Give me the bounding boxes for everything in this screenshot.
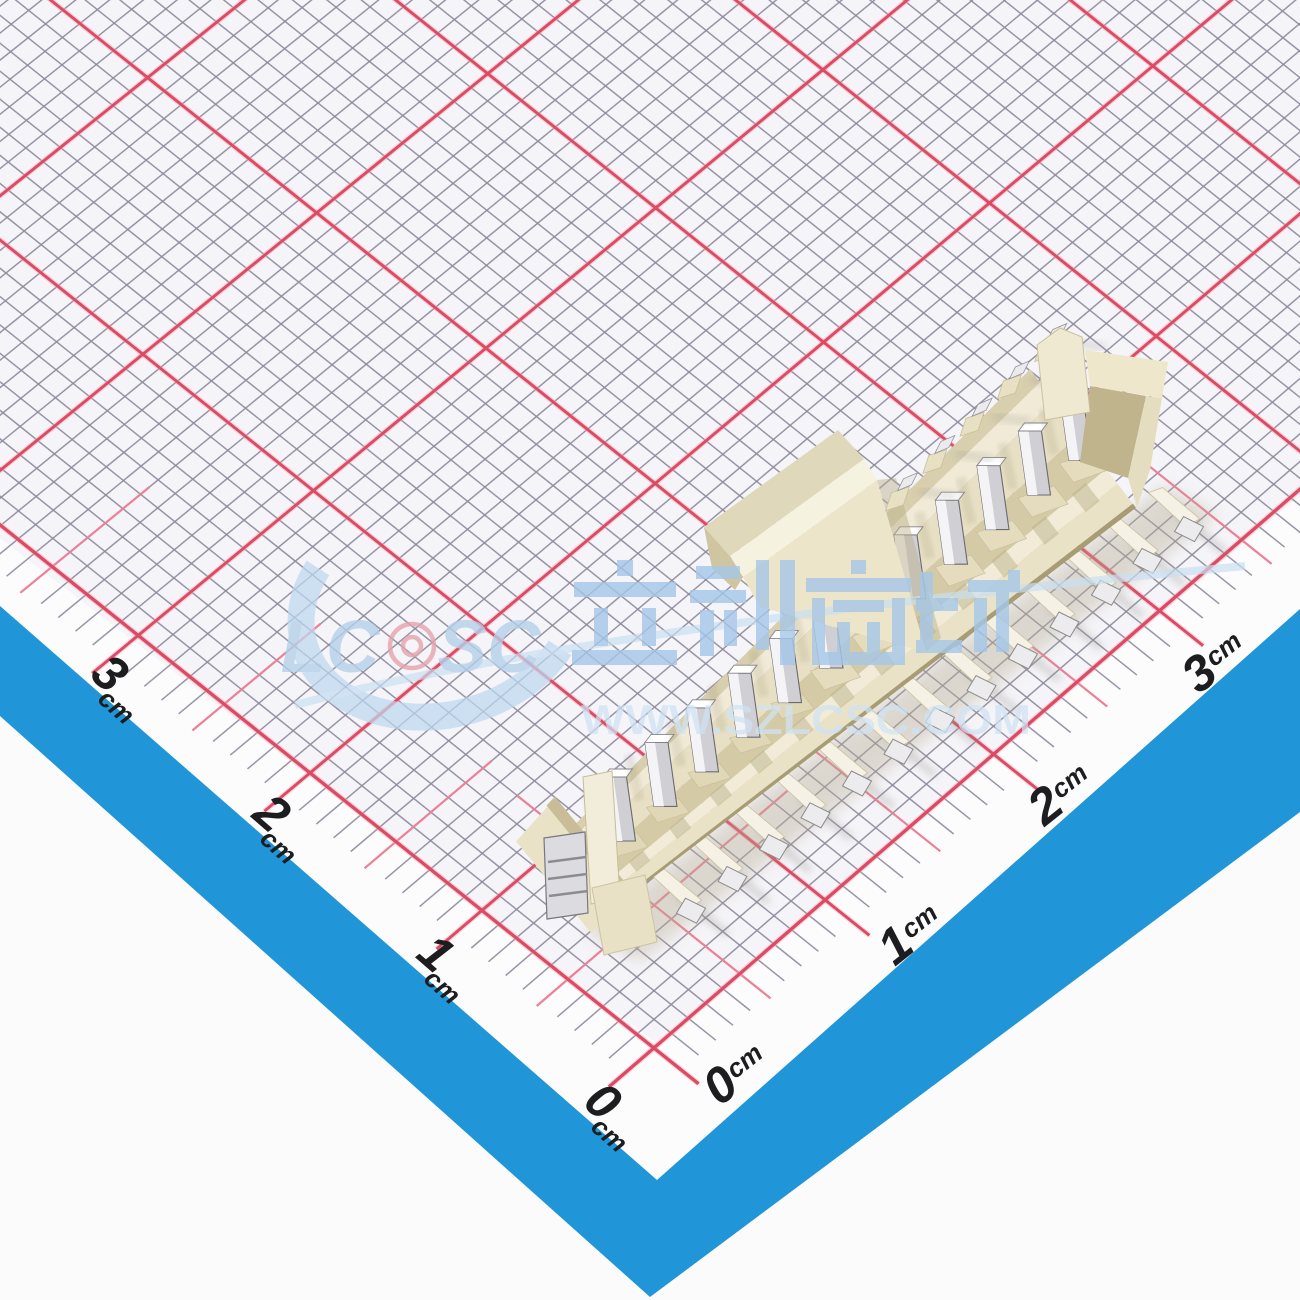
- svg-text:WWW.SZLCSC.COM: WWW.SZLCSC.COM: [581, 696, 1031, 743]
- svg-text:LC: LC: [281, 605, 381, 688]
- svg-text:SC: SC: [438, 605, 542, 688]
